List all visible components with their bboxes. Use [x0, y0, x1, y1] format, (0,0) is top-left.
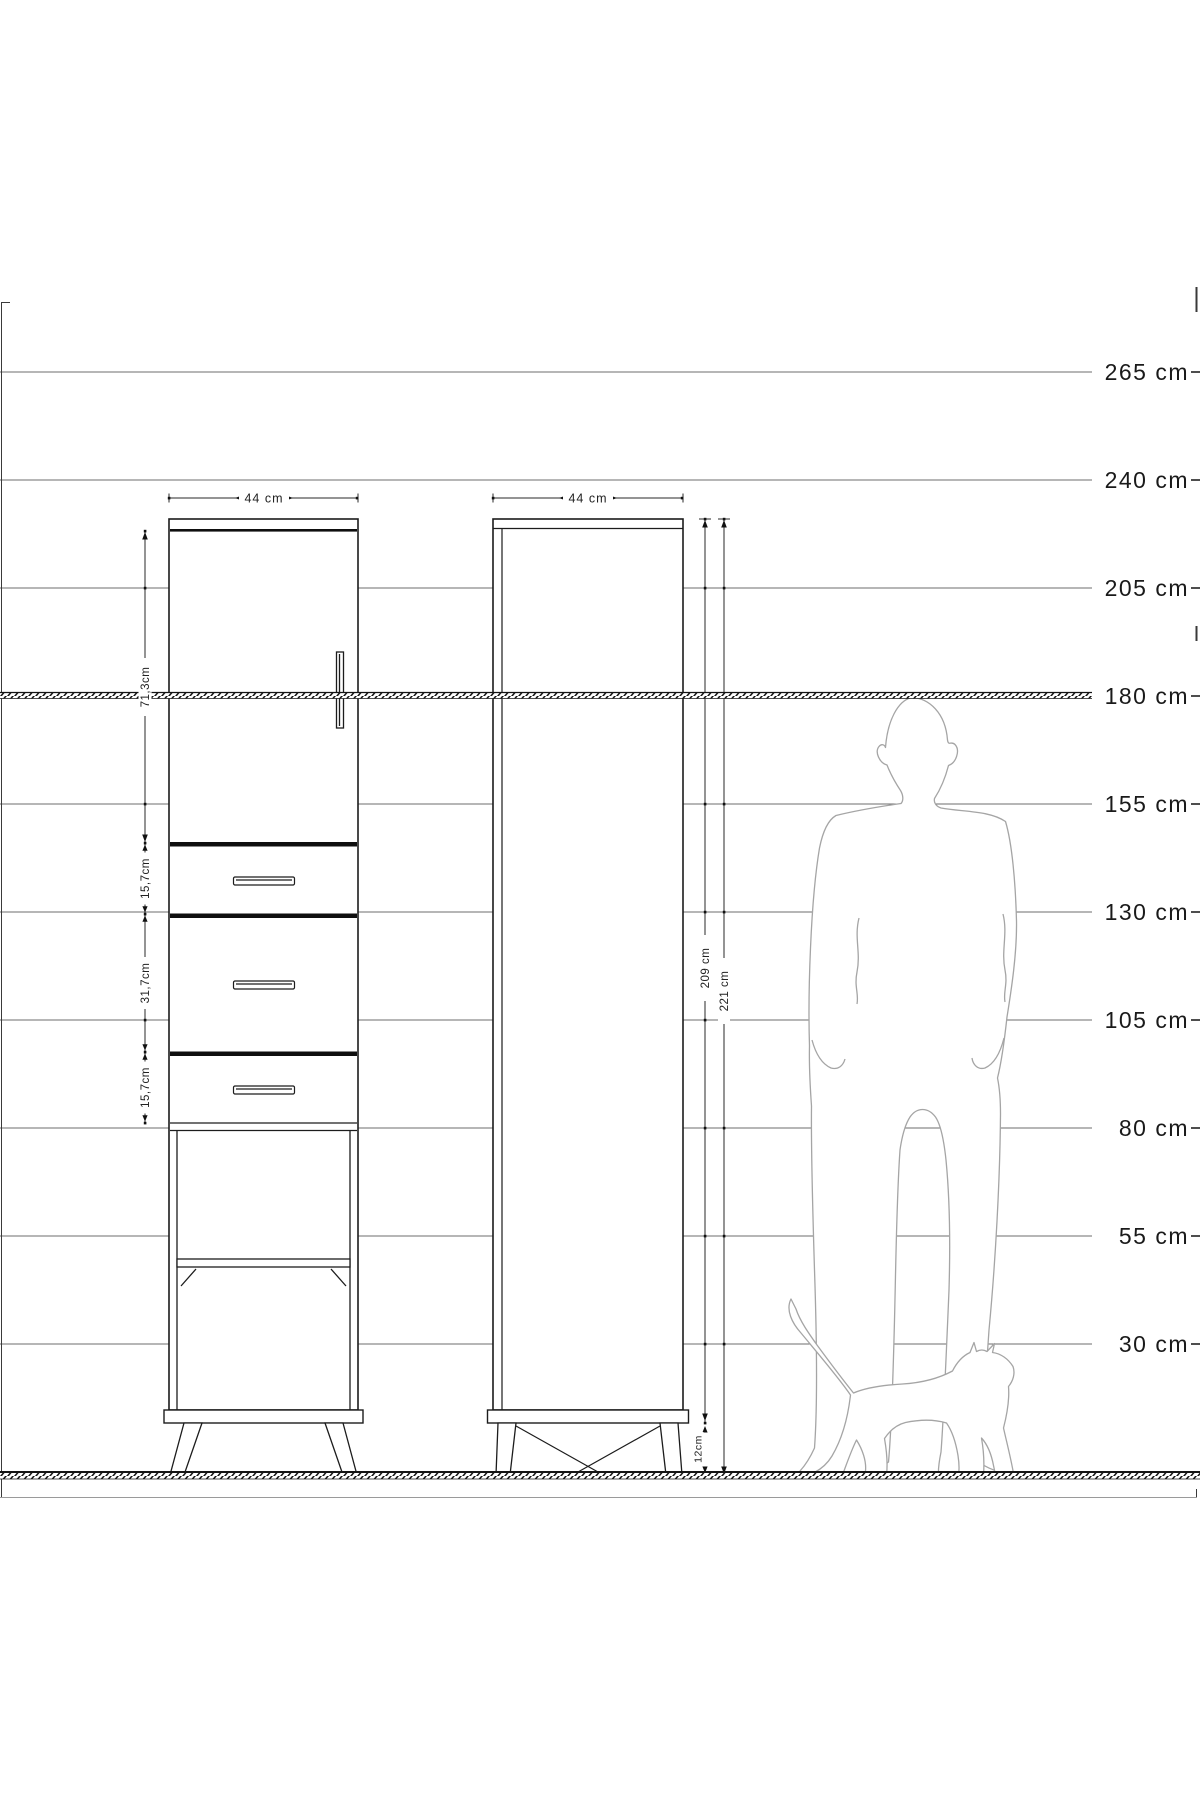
ruler-label-55: 55 cm: [1119, 1223, 1189, 1249]
right-cabinet-leg-brace-right: [578, 1426, 660, 1472]
door-height-label: 71,3cm: [140, 667, 152, 708]
drawer-3-height-label: 15,7cm: [140, 1067, 152, 1108]
left-cabinet: [164, 519, 363, 1475]
ruler-label-80: 80 cm: [1119, 1115, 1189, 1141]
body-height-label: 209 cm: [700, 948, 712, 989]
right-cabinet-leg-right: [660, 1423, 682, 1475]
ruler-label-155: 155 cm: [1105, 791, 1189, 817]
left-cabinet-bottom-board: [164, 1410, 363, 1423]
right-cabinet-bottom-board: [488, 1410, 689, 1423]
right-cabinet-width-label: 44 cm: [568, 492, 607, 506]
furniture-dimension-diagram: 265 cm 240 cm 205 cm 180 cm 155 cm 130 c…: [0, 0, 1200, 1800]
right-cabinet-body: [493, 519, 683, 1410]
drawer-2-height-label: 31,7cm: [140, 963, 152, 1004]
right-cabinet-leg-left: [496, 1423, 516, 1475]
leg-height-label: 12cm: [693, 1435, 705, 1463]
ruler-label-240: 240 cm: [1105, 467, 1189, 493]
shelf-board: [177, 1259, 350, 1267]
ruler-label-30: 30 cm: [1119, 1331, 1189, 1357]
ruler-label-265: 265 cm: [1105, 359, 1189, 385]
left-cabinet-leg-right: [325, 1423, 357, 1475]
ruler-label-105: 105 cm: [1105, 1007, 1189, 1033]
left-cabinet-top-board: [170, 529, 357, 532]
drawer-1-handle: [234, 877, 295, 885]
height-ruler-labels: 265 cm 240 cm 205 cm 180 cm 155 cm 130 c…: [1105, 359, 1200, 1357]
ground-line: [0, 1472, 1200, 1479]
wall-line-180cm: [0, 693, 1092, 699]
drawer-divider-2: [170, 1052, 357, 1057]
drawer-1-height-label: 15,7cm: [140, 858, 152, 899]
left-cabinet-leg-left: [170, 1423, 202, 1475]
left-cabinet-width-label: 44 cm: [244, 492, 283, 506]
ruler-label-205: 205 cm: [1105, 575, 1189, 601]
left-dimension-chain: [142, 530, 148, 1125]
right-cabinet: [488, 519, 689, 1475]
drawer-3-handle: [234, 1086, 295, 1094]
drawer-divider-1: [170, 914, 357, 919]
door-handle: [337, 652, 344, 728]
door-divider: [170, 842, 357, 847]
right-cabinet-leg-brace-left: [516, 1426, 598, 1472]
drawer-2-handle: [234, 981, 295, 989]
cabinet-door: [170, 532, 357, 842]
ruler-label-130: 130 cm: [1105, 899, 1189, 925]
total-height-label: 221 cm: [719, 971, 731, 1012]
ruler-label-180: 180 cm: [1105, 683, 1189, 709]
